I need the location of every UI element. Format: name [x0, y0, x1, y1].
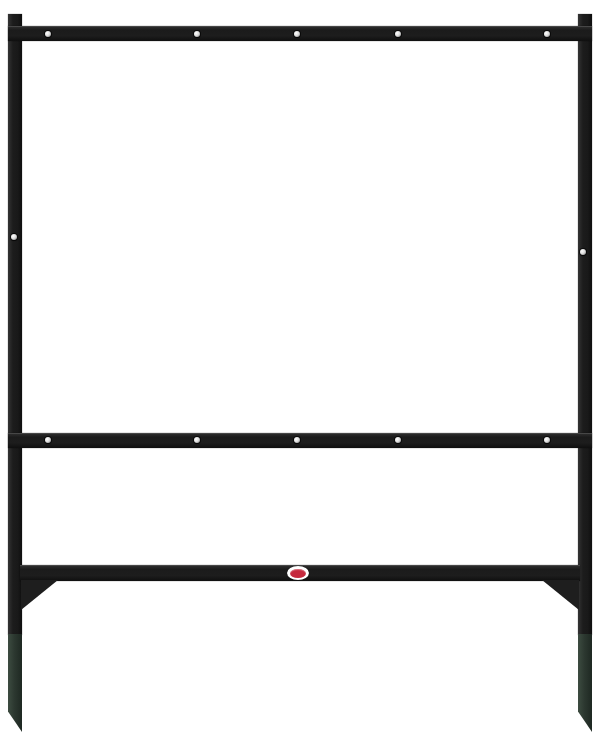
main-sign-panel-area — [22, 41, 578, 433]
top-crossbar — [8, 26, 592, 41]
left-gusset — [21, 580, 58, 610]
right-stake — [578, 634, 592, 732]
brand-label-oval — [290, 569, 306, 578]
rivet — [544, 31, 550, 37]
left-post — [8, 14, 22, 635]
right-gusset — [542, 580, 579, 610]
rivet — [194, 437, 200, 443]
right-post — [578, 14, 592, 635]
brand-label-sticker — [287, 566, 309, 580]
rivet — [544, 437, 550, 443]
rivet — [395, 437, 401, 443]
rivet — [45, 437, 51, 443]
rivet — [45, 31, 51, 37]
rivet — [194, 31, 200, 37]
rivet — [580, 249, 586, 255]
rider-panel-area — [22, 447, 578, 565]
middle-crossbar — [8, 433, 592, 448]
rivet — [11, 234, 17, 240]
left-stake — [8, 634, 22, 732]
rivet — [294, 31, 300, 37]
rivet — [294, 437, 300, 443]
sign-frame — [0, 0, 600, 750]
rivet — [395, 31, 401, 37]
